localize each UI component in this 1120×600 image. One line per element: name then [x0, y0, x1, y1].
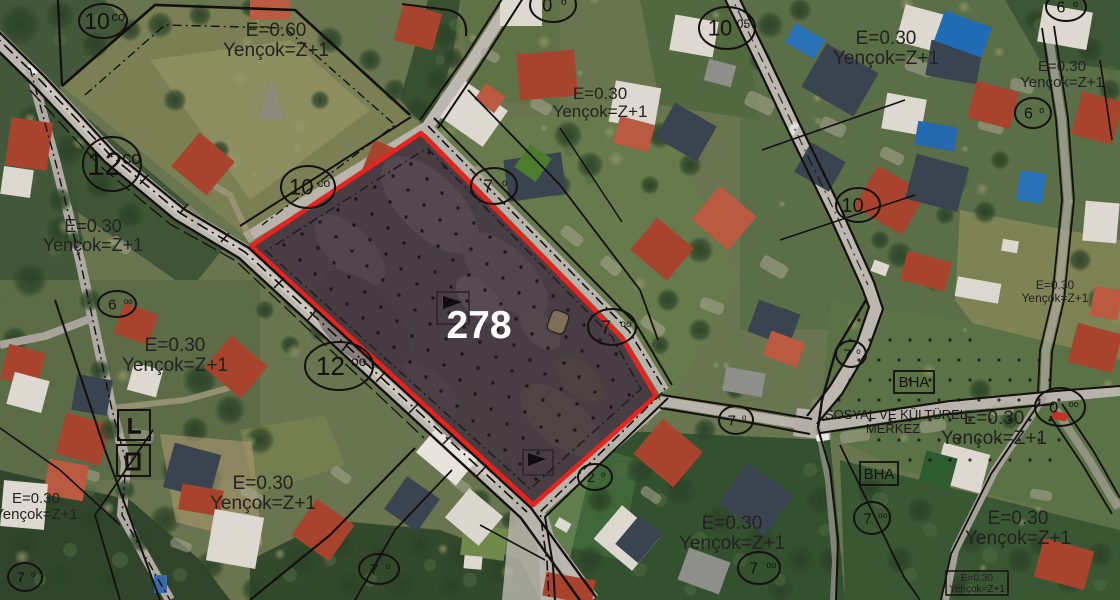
svg-text:E=0.30: E=0.30	[1038, 58, 1086, 75]
svg-text:7: 7	[749, 561, 758, 578]
svg-text:7: 7	[370, 561, 378, 578]
svg-text:oo: oo	[766, 560, 776, 570]
svg-text:oo: oo	[620, 319, 632, 330]
svg-text:6: 6	[1057, 0, 1066, 17]
svg-text:Yençok=Z+1: Yençok=Z+1	[941, 428, 1047, 449]
svg-text:6: 6	[1024, 106, 1033, 123]
svg-text:6: 6	[108, 296, 116, 313]
svg-text:E=0.30: E=0.30	[702, 513, 763, 534]
svg-text:E=0.30: E=0.30	[12, 490, 60, 507]
svg-text:E=0.30: E=0.30	[964, 408, 1025, 429]
svg-text:Yençok=Z+1: Yençok=Z+1	[210, 493, 316, 514]
svg-text:co: co	[111, 9, 125, 24]
svg-text:10: 10	[289, 175, 313, 200]
svg-text:Yençok=Z+1: Yençok=Z+1	[223, 40, 329, 61]
svg-text:oo: oo	[351, 353, 367, 369]
svg-text:co: co	[122, 148, 141, 168]
svg-text:o: o	[31, 570, 36, 579]
svg-text:10: 10	[841, 195, 863, 217]
svg-text:12: 12	[87, 146, 123, 182]
svg-text:Yençok=Z+1: Yençok=Z+1	[1022, 291, 1089, 305]
svg-text:Yençok=Z+1: Yençok=Z+1	[122, 355, 228, 376]
svg-text:BHA: BHA	[864, 466, 895, 483]
svg-text:2: 2	[587, 469, 595, 485]
svg-text:E=0.30: E=0.30	[988, 508, 1049, 529]
svg-text:Yençok=Z+1: Yençok=Z+1	[679, 533, 785, 554]
svg-text:o: o	[742, 413, 747, 422]
svg-text:Yençok=Z+1: Yençok=Z+1	[43, 235, 143, 255]
svg-text:o: o	[1073, 0, 1078, 9]
svg-text:Yençok=Z+1: Yençok=Z+1	[553, 102, 648, 121]
svg-text:o: o	[856, 347, 861, 356]
svg-text:oo: oo	[1069, 399, 1079, 409]
svg-text:E=0.30: E=0.30	[856, 28, 917, 49]
svg-text:7: 7	[483, 176, 493, 196]
svg-text:oo: oo	[124, 297, 133, 306]
svg-text:7: 7	[601, 317, 611, 337]
svg-text:7: 7	[17, 569, 25, 585]
svg-text:E=0.30: E=0.30	[573, 84, 627, 103]
svg-text:10: 10	[84, 8, 110, 34]
svg-text:05: 05	[737, 17, 751, 31]
svg-text:E=0.30: E=0.30	[233, 473, 294, 494]
svg-text:7: 7	[863, 510, 871, 527]
svg-text:Yençok=Z+1: Yençok=Z+1	[833, 48, 939, 69]
svg-text:278: 278	[446, 304, 511, 347]
svg-text:Yençok=Z+1: Yençok=Z+1	[0, 506, 78, 523]
svg-text:o: o	[502, 178, 508, 189]
svg-text:E=0.30: E=0.30	[1036, 278, 1075, 292]
svg-text:o: o	[1039, 105, 1044, 115]
svg-text:oo: oo	[878, 511, 887, 520]
svg-text:SOSYAL VE KÜLTÜREL: SOSYAL VE KÜLTÜREL	[825, 407, 967, 422]
svg-text:o: o	[561, 0, 567, 8]
svg-text:co: co	[317, 176, 330, 190]
svg-text:Yençok=Z+1: Yençok=Z+1	[1020, 74, 1104, 91]
svg-text:o: o	[386, 562, 391, 571]
svg-text:Yençok=Z+1: Yençok=Z+1	[965, 528, 1071, 549]
svg-text:E=0.60: E=0.60	[246, 20, 307, 41]
svg-text:Yençok=Z+1: Yençok=Z+1	[949, 584, 1005, 595]
svg-text:7: 7	[728, 412, 736, 429]
svg-text:MERKEZ: MERKEZ	[866, 421, 920, 436]
svg-text:E=0.30: E=0.30	[64, 216, 122, 236]
svg-text:12: 12	[316, 351, 345, 381]
svg-text:10: 10	[708, 16, 732, 41]
svg-text:E=0.30: E=0.30	[145, 335, 206, 356]
svg-text:BHA: BHA	[899, 374, 930, 391]
svg-text:0: 0	[542, 0, 552, 15]
svg-text:0: 0	[1049, 400, 1058, 417]
svg-text:o: o	[601, 470, 606, 479]
svg-text:E=0.30: E=0.30	[961, 573, 993, 584]
svg-text:7: 7	[843, 346, 851, 362]
